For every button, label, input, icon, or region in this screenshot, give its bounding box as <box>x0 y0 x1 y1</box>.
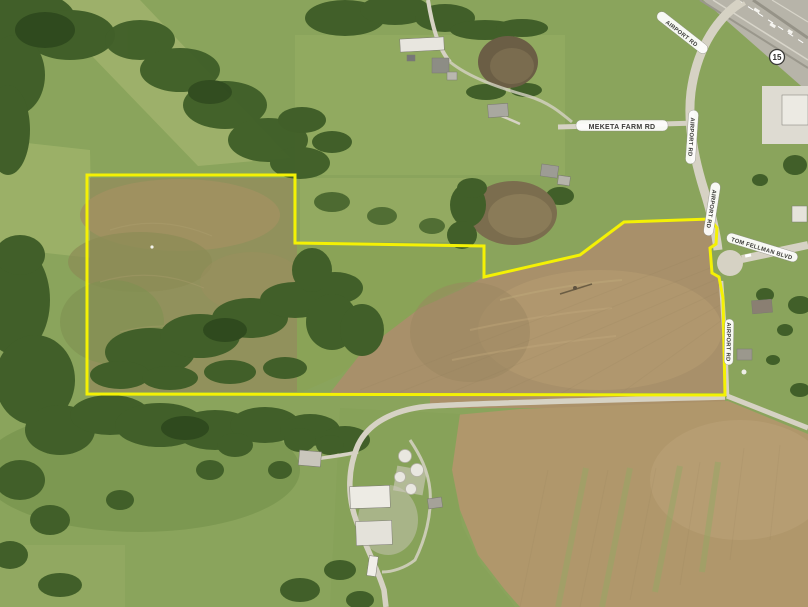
route-15-shield: 15 <box>770 50 785 65</box>
svg-text:AIRPORT RD: AIRPORT RD <box>724 322 731 361</box>
pond-upper <box>478 36 538 88</box>
aerial-map-screenshot: MEKETA FARM RD AIRPORT RD AIRPORT RD AIR… <box>0 0 808 607</box>
svg-text:15: 15 <box>773 53 782 62</box>
svg-text:MEKETA FARM RD: MEKETA FARM RD <box>589 124 656 131</box>
road-label-airport-rd-lower: AIRPORT RD <box>724 319 734 365</box>
aerial-map: MEKETA FARM RD AIRPORT RD AIRPORT RD AIR… <box>0 0 808 607</box>
road-label-meketa-farm-rd: MEKETA FARM RD <box>576 120 668 131</box>
tilled-field-lower-right <box>450 401 808 607</box>
